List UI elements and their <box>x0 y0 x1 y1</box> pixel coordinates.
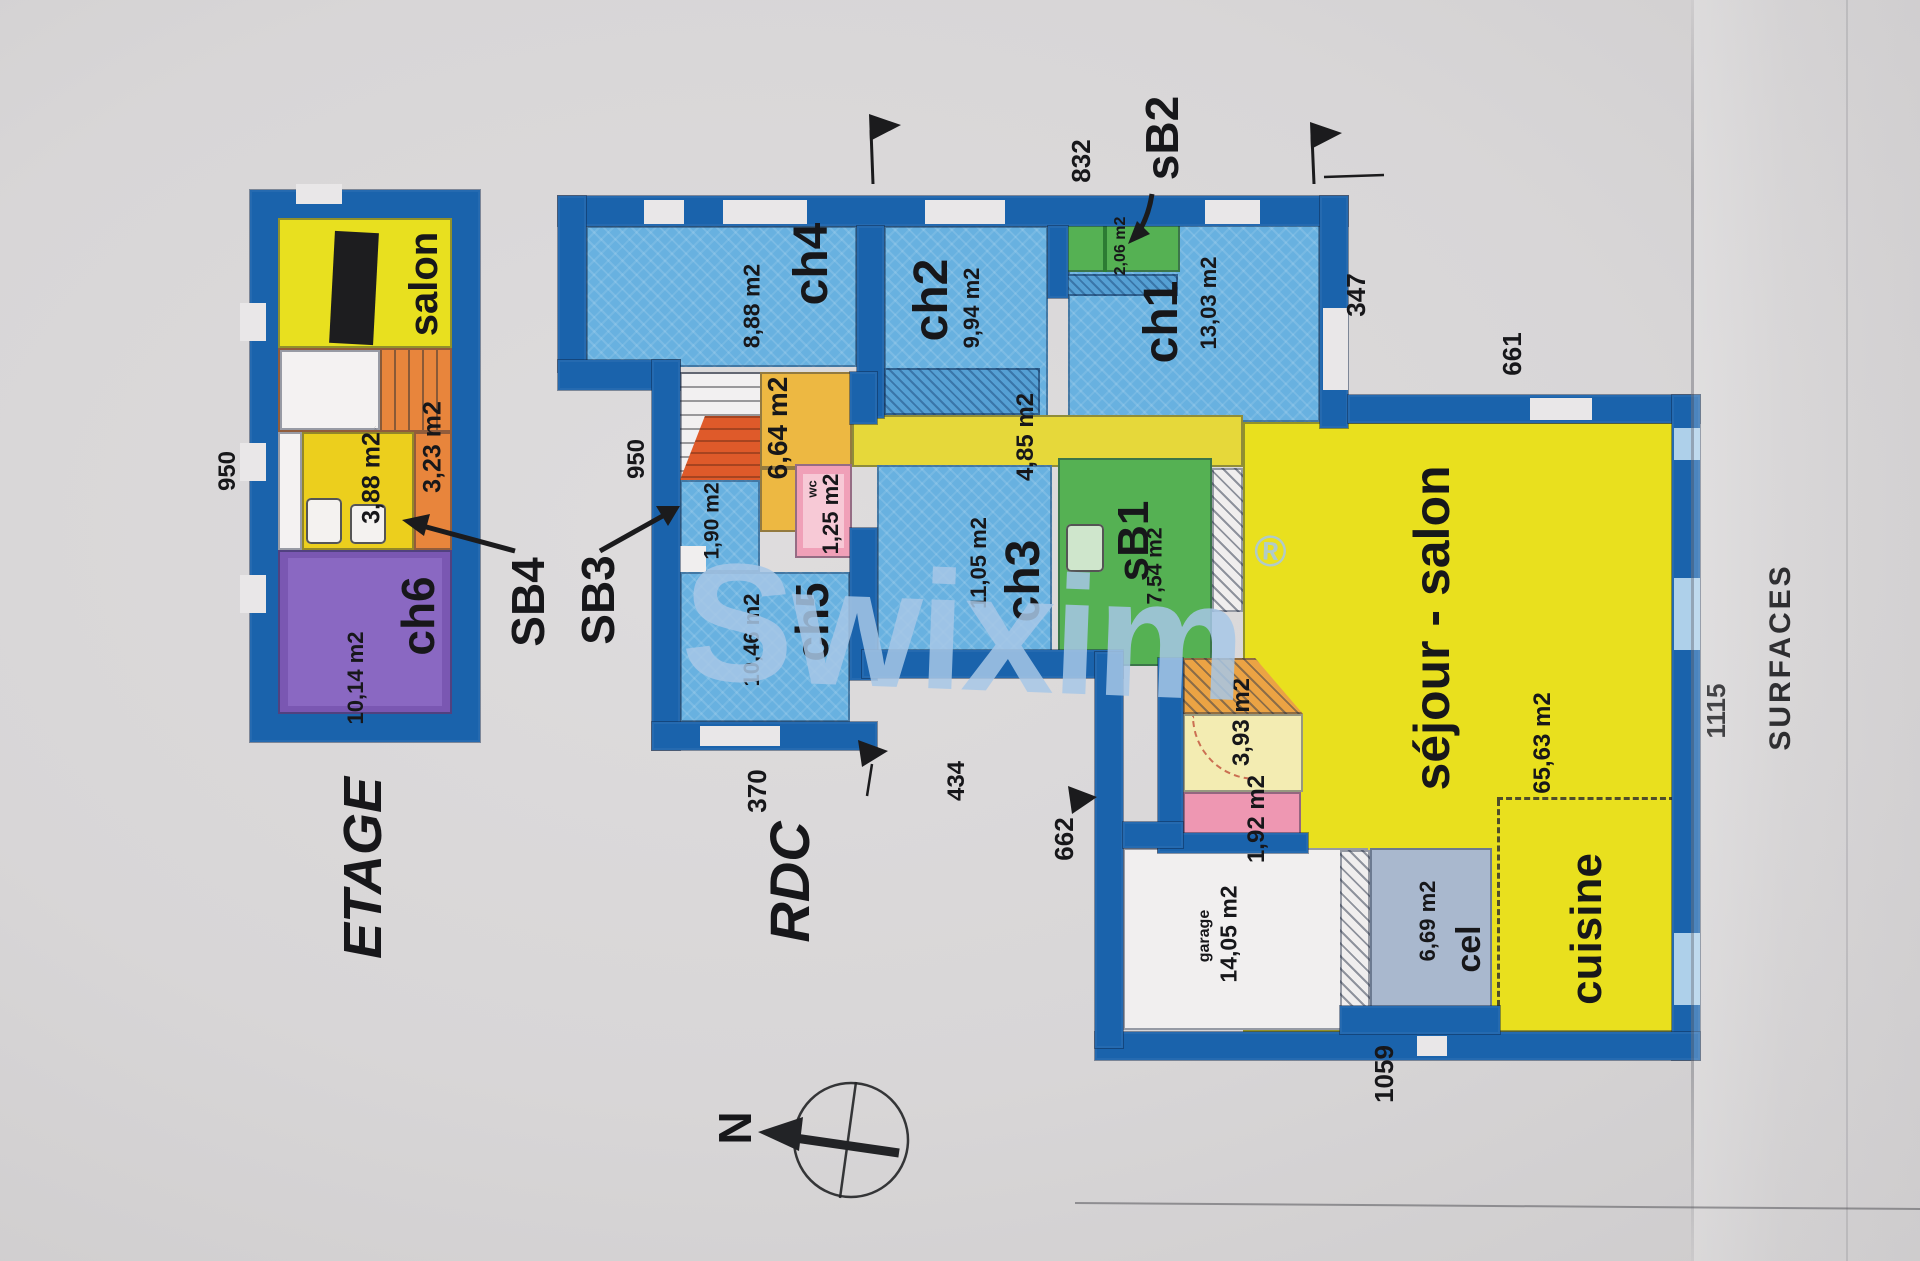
arrow-sb4 <box>402 514 515 551</box>
arrow-sb2 <box>1128 194 1152 244</box>
arrow-sb3 <box>600 506 680 551</box>
compass-icon <box>758 1082 908 1198</box>
floorplan-scan: Swixim® <box>0 0 1920 1261</box>
flag-icon-1 <box>869 114 901 184</box>
flag-icon-4 <box>1068 786 1097 814</box>
annotation-overlay <box>0 0 1920 1261</box>
flag-icon-3 <box>858 740 888 796</box>
flag-icon-2 <box>1310 122 1384 184</box>
